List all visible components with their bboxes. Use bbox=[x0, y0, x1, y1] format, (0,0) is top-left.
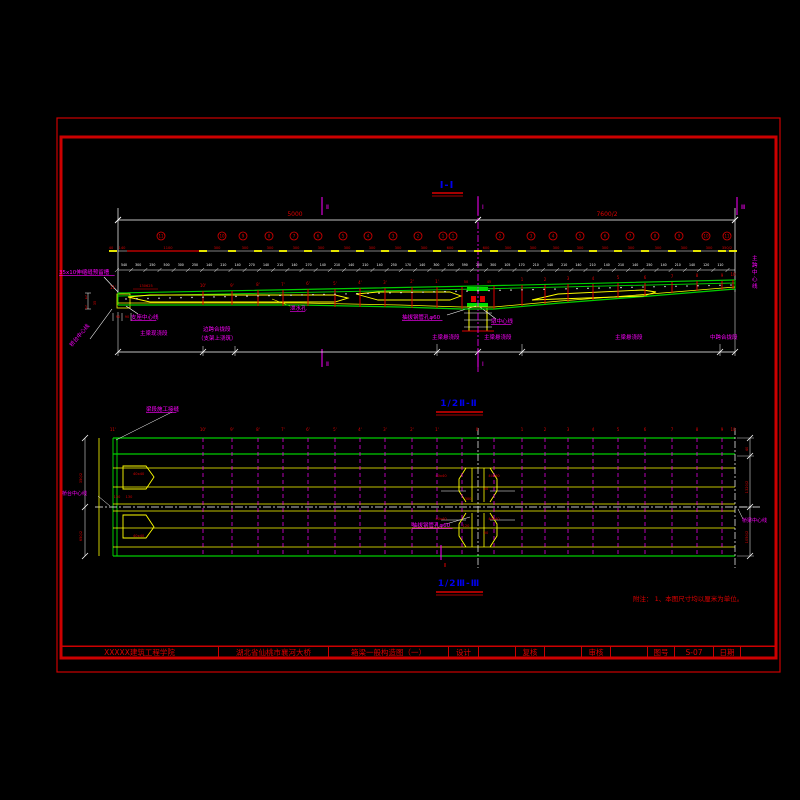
cad-text: Ⅰ bbox=[482, 204, 484, 211]
segment-number-elev: 4 bbox=[592, 276, 595, 281]
tendon-number: 5 bbox=[579, 234, 582, 239]
cad-text: Ⅲ bbox=[741, 204, 745, 211]
cad-text: 650/2 bbox=[79, 531, 83, 541]
small-dim: 210 bbox=[362, 263, 368, 267]
cad-text: 主梁悬浇段 bbox=[432, 333, 460, 341]
small-dim: 120 bbox=[703, 263, 709, 267]
slab-dot bbox=[279, 295, 280, 296]
segment-number-elev: 9 bbox=[721, 273, 724, 278]
cad-text: 140 bbox=[119, 246, 127, 250]
segment-number-elev: 6' bbox=[306, 281, 310, 286]
segment-number-elev: 9' bbox=[230, 283, 234, 288]
slab-dot bbox=[356, 293, 357, 294]
cad-text: 桥台中心线 bbox=[62, 490, 87, 497]
slab-dot bbox=[411, 292, 412, 293]
segment-number-plan: 8 bbox=[696, 427, 699, 432]
cad-text: 300 bbox=[318, 246, 326, 250]
section-title-elevation: Ⅰ-Ⅰ bbox=[425, 180, 469, 191]
cad-text: 300 bbox=[553, 246, 561, 250]
tendon-number: 11 bbox=[158, 234, 164, 239]
cad-text: Ⅱ bbox=[326, 361, 329, 368]
cad-rect bbox=[471, 296, 476, 302]
cad-text: 90 bbox=[125, 315, 129, 319]
cad-text: 支座中心线 bbox=[131, 313, 159, 321]
tendon-number: 1 bbox=[452, 234, 455, 239]
tendon-number: 4 bbox=[367, 234, 370, 239]
cad-text: 1 bbox=[85, 295, 88, 301]
tendon-number: 6 bbox=[317, 234, 320, 239]
small-dim: 270 bbox=[306, 263, 312, 267]
slab-dot bbox=[499, 290, 500, 291]
slab-dot bbox=[125, 298, 126, 299]
cad-text: 300 bbox=[505, 246, 513, 250]
cad-text: 抽拔钢管孔φ60 bbox=[412, 521, 451, 529]
cad-text: 边跨合拢段 bbox=[203, 325, 231, 333]
cad-text: 300 bbox=[530, 246, 538, 250]
segment-number-plan: 1 bbox=[521, 427, 524, 432]
titleblock-drawing-name: 箱梁一般构造图（一） bbox=[329, 647, 449, 659]
tendon-number: 2 bbox=[499, 234, 502, 239]
cad-text: 40x40 bbox=[133, 534, 145, 538]
tendon-number: 10 bbox=[703, 234, 709, 239]
small-dim: 140 bbox=[348, 263, 354, 267]
cad-text: 90 bbox=[116, 315, 120, 319]
small-dim: 250 bbox=[149, 263, 155, 267]
segment-number-elev: 6 bbox=[644, 275, 647, 280]
small-dim: 210 bbox=[277, 263, 283, 267]
segment-number-elev: 7 bbox=[671, 274, 674, 279]
cad-text: 300 bbox=[267, 246, 275, 250]
cad-text: 1050/2 bbox=[745, 531, 749, 544]
small-dim: 170 bbox=[519, 263, 525, 267]
tendon-number: 3 bbox=[530, 234, 533, 239]
segment-number-plan: 1' bbox=[435, 427, 439, 432]
cad-text: 120 bbox=[463, 524, 471, 528]
cad-text: Ⅰ bbox=[482, 361, 484, 368]
small-dim: 140 bbox=[320, 263, 326, 267]
slab-dot bbox=[510, 289, 511, 290]
titleblock-date-value bbox=[741, 647, 776, 659]
small-dim: 140 bbox=[235, 263, 241, 267]
small-dim: 210 bbox=[334, 263, 340, 267]
title-block: XXXXX建筑工程学院 湖北省仙桃市襄河大桥 箱梁一般构造图（一） 设计 复核 … bbox=[61, 646, 776, 658]
cad-text: 300 bbox=[214, 246, 222, 250]
cad-text: （支架上浇筑） bbox=[198, 334, 237, 342]
cad-text: 35 bbox=[93, 301, 97, 305]
segment-number-elev: 8 bbox=[696, 273, 699, 278]
small-dim: 140 bbox=[206, 263, 212, 267]
cad-text: 130625 bbox=[139, 284, 152, 288]
segment-number-plan: 10' bbox=[200, 427, 206, 432]
segment-number-plan: 10 bbox=[730, 427, 736, 432]
cad-text: 40 bbox=[745, 446, 749, 451]
slab-dot bbox=[532, 289, 533, 290]
slab-dot bbox=[389, 292, 390, 293]
small-dim: 500 bbox=[164, 263, 170, 267]
tendon-number: 8 bbox=[268, 234, 271, 239]
cad-rect bbox=[480, 296, 485, 302]
segment-number-plan: 4 bbox=[592, 427, 595, 432]
slab-dot bbox=[400, 292, 401, 293]
cad-text: 300 bbox=[369, 246, 377, 250]
slab-dot bbox=[653, 286, 654, 287]
cad-text: 40x40 bbox=[488, 517, 500, 521]
small-dim: 590 bbox=[462, 263, 468, 267]
segment-number-plan: 6' bbox=[306, 427, 310, 432]
slab-dot bbox=[565, 288, 566, 289]
small-dim: 170 bbox=[405, 263, 411, 267]
cad-text: 130 bbox=[114, 495, 121, 499]
small-dim: 250 bbox=[391, 263, 397, 267]
slab-dot bbox=[290, 294, 291, 295]
titleblock-project: 湖北省仙桃市襄河大桥 bbox=[219, 647, 329, 659]
titleblock-sheetno-value: S-07 bbox=[675, 647, 714, 659]
titleblock-date-label: 日期 bbox=[714, 647, 741, 659]
slab-dot bbox=[697, 285, 698, 286]
small-dim: 140 bbox=[661, 263, 667, 267]
segment-number-plan: 7 bbox=[671, 427, 674, 432]
segment-number-plan: 4' bbox=[358, 427, 362, 432]
slab-dot bbox=[367, 293, 368, 294]
segment-number-elev: 10' bbox=[200, 283, 206, 288]
cad-text: 主梁现浇段 bbox=[140, 329, 168, 337]
slab-dot bbox=[257, 295, 258, 296]
cad-text: 600 bbox=[447, 246, 455, 250]
segment-number-plan: 9 bbox=[721, 427, 724, 432]
small-dim: 300 bbox=[490, 263, 496, 267]
slab-dot bbox=[554, 288, 555, 289]
segment-number-elev: 7' bbox=[281, 282, 285, 287]
cad-text: 桥梁中心线 bbox=[742, 517, 767, 524]
slab-dot bbox=[675, 286, 676, 287]
slab-dot bbox=[158, 298, 159, 299]
segment-number-plan: 5 bbox=[617, 427, 620, 432]
cad-text: 300 bbox=[681, 246, 689, 250]
tendon-number: 6 bbox=[604, 234, 607, 239]
slab-dot bbox=[543, 289, 544, 290]
titleblock-design-value bbox=[479, 647, 516, 659]
segment-number-elev: 3 bbox=[567, 276, 570, 281]
cad-text: 40 bbox=[109, 246, 114, 250]
titleblock-check-label: 复核 bbox=[516, 647, 545, 659]
segment-number-elev: 5 bbox=[617, 275, 620, 280]
units-note: 附注： 1、本图尺寸均以厘米为单位。 bbox=[633, 593, 743, 603]
slab-dot bbox=[620, 287, 621, 288]
slab-dot bbox=[477, 290, 478, 291]
titleblock-check-value bbox=[545, 647, 582, 659]
small-dim: 300 bbox=[433, 263, 439, 267]
slab-dot bbox=[686, 285, 687, 286]
cad-text: 梁段施工接缝 bbox=[146, 405, 180, 413]
slab-dot bbox=[422, 291, 423, 292]
cad-text: 600 bbox=[483, 246, 491, 250]
cad-text: Ⅱ bbox=[444, 563, 446, 569]
slab-dot bbox=[521, 289, 522, 290]
segment-number-plan: 6 bbox=[644, 427, 647, 432]
segment-number-elev: 8' bbox=[256, 282, 260, 287]
slab-dot bbox=[730, 284, 731, 285]
cad-text: Ⅱ bbox=[326, 204, 329, 211]
slab-dot bbox=[466, 290, 467, 291]
slab-dot bbox=[323, 294, 324, 295]
slab-dot bbox=[598, 287, 599, 288]
slab-dot bbox=[301, 294, 302, 295]
cad-sheet: 50007600/2ⅡⅠⅢⅡⅠ4014011003003003003003003… bbox=[0, 0, 800, 800]
cad-text: 7600/2 bbox=[596, 211, 617, 218]
cad-text: 中跨合拢段 bbox=[710, 333, 738, 341]
cad-text: 130 bbox=[126, 495, 133, 499]
small-dim: 210 bbox=[220, 263, 226, 267]
cad-text: 泄水孔 bbox=[290, 304, 307, 312]
cad-rect bbox=[467, 303, 488, 307]
cad-text: 50 bbox=[484, 531, 489, 535]
slab-dot bbox=[433, 291, 434, 292]
small-dim: 210 bbox=[675, 263, 681, 267]
small-dim: 110 bbox=[717, 263, 723, 267]
drawing-svg: 50007600/2ⅡⅠⅢⅡⅠ4014011003003003003003003… bbox=[0, 0, 800, 800]
slab-dot bbox=[587, 288, 588, 289]
small-dim: 250 bbox=[646, 263, 652, 267]
slab-dot bbox=[169, 297, 170, 298]
segment-number-plan: 11' bbox=[110, 427, 116, 432]
cad-text: 300 bbox=[344, 246, 352, 250]
segment-number-elev: 11' bbox=[110, 285, 116, 290]
slab-dot bbox=[378, 292, 379, 293]
small-dim: 210 bbox=[618, 263, 624, 267]
small-dim: 250 bbox=[192, 263, 198, 267]
slab-dot bbox=[455, 291, 456, 292]
cad-text: 300 bbox=[628, 246, 636, 250]
cad-text: 50 bbox=[484, 487, 489, 491]
segment-number-elev: 1' bbox=[435, 279, 439, 284]
cad-text: 350/2 bbox=[722, 246, 732, 250]
titleblock-review-value bbox=[611, 647, 648, 659]
cad-text: 40x40 bbox=[133, 472, 145, 476]
cad-text: 主梁悬浇段 bbox=[484, 333, 512, 341]
cad-text: 300 bbox=[293, 246, 301, 250]
tendon-number: 4 bbox=[552, 234, 555, 239]
cad-text: 1100 bbox=[163, 246, 173, 250]
tendon-number: 9 bbox=[678, 234, 681, 239]
slab-dot bbox=[664, 286, 665, 287]
small-dim: 140 bbox=[689, 263, 695, 267]
cad-text: 45 bbox=[487, 280, 491, 284]
titleblock-review-label: 审核 bbox=[582, 647, 611, 659]
segment-number-plan: 0 bbox=[476, 427, 479, 432]
segment-number-plan: 3' bbox=[383, 427, 387, 432]
small-dim: 200 bbox=[448, 263, 454, 267]
slab-dot bbox=[246, 296, 247, 297]
section-title-plan-top: 1/2Ⅱ-Ⅱ bbox=[430, 399, 488, 409]
cad-text: 1 bbox=[85, 305, 88, 311]
titleblock-sheetno-label: 图号 bbox=[648, 647, 675, 659]
slab-dot bbox=[191, 297, 192, 298]
slab-dot bbox=[345, 293, 346, 294]
cad-text: 5000 bbox=[287, 211, 302, 218]
sheet-background bbox=[0, 0, 800, 800]
segment-number-plan: 7' bbox=[281, 427, 285, 432]
segment-number-elev: 2 bbox=[544, 277, 547, 282]
small-dim: 200 bbox=[476, 263, 482, 267]
slab-dot bbox=[334, 293, 335, 294]
small-dim: 140 bbox=[377, 263, 383, 267]
cad-text: 抽拔钢管孔φ60 bbox=[402, 313, 441, 321]
titleblock-design-label: 设计 bbox=[449, 647, 479, 659]
tendon-number: 8 bbox=[654, 234, 657, 239]
small-dim: 140 bbox=[575, 263, 581, 267]
segment-number-plan: 8' bbox=[256, 427, 260, 432]
small-dim: 105 bbox=[504, 263, 510, 267]
cad-text: 1320/2 bbox=[745, 481, 749, 494]
cad-text: 300 bbox=[577, 246, 585, 250]
slab-dot bbox=[719, 285, 720, 286]
tendon-number: 3 bbox=[392, 234, 395, 239]
cad-text: 墩中心线 bbox=[491, 317, 514, 325]
slab-dot bbox=[631, 287, 632, 288]
segment-number-plan: 2 bbox=[544, 427, 547, 432]
slab-dot bbox=[708, 285, 709, 286]
small-dim: 140 bbox=[419, 263, 425, 267]
cad-text: 300 bbox=[655, 246, 663, 250]
small-dim: 210 bbox=[590, 263, 596, 267]
segment-number-elev: 5' bbox=[333, 281, 337, 286]
slab-dot bbox=[224, 296, 225, 297]
cad-text: 300 bbox=[242, 246, 250, 250]
small-dim: 300 bbox=[135, 263, 141, 267]
cad-text: 40x40 bbox=[488, 474, 500, 478]
small-dim: 140 bbox=[547, 263, 553, 267]
tendon-number: 10 bbox=[219, 234, 225, 239]
slab-dot bbox=[312, 294, 313, 295]
cad-text: 300 bbox=[706, 246, 714, 250]
tendon-number: 9 bbox=[242, 234, 245, 239]
segment-number-elev: 1 bbox=[521, 277, 524, 282]
slab-dot bbox=[444, 291, 445, 292]
slab-dot bbox=[609, 287, 610, 288]
segment-number-plan: 5' bbox=[333, 427, 337, 432]
cad-text: 350/2 bbox=[79, 473, 83, 483]
small-dim: 540 bbox=[121, 263, 127, 267]
small-dim: 300 bbox=[178, 263, 184, 267]
cad-text: 300 bbox=[395, 246, 403, 250]
small-dim: 140 bbox=[263, 263, 269, 267]
cad-text: 主跨中心线 bbox=[752, 254, 758, 290]
tendon-number: 7 bbox=[293, 234, 296, 239]
tendon-number: 1 bbox=[442, 234, 445, 239]
slab-dot bbox=[235, 296, 236, 297]
slab-dot bbox=[136, 298, 137, 299]
segment-number-elev: 10 bbox=[730, 272, 736, 277]
section-title-plan-bottom: 1/2Ⅲ-Ⅲ bbox=[430, 579, 488, 589]
small-dim: 270 bbox=[249, 263, 255, 267]
segment-number-plan: 9' bbox=[230, 427, 234, 432]
tendon-number: 11 bbox=[724, 234, 730, 239]
slab-dot bbox=[488, 290, 489, 291]
cad-text: 300 bbox=[465, 497, 473, 501]
segment-number-elev: 2' bbox=[410, 279, 414, 284]
slab-dot bbox=[642, 286, 643, 287]
tendon-number: 7 bbox=[629, 234, 632, 239]
small-dim: 210 bbox=[533, 263, 539, 267]
slab-dot bbox=[202, 297, 203, 298]
small-dim: 140 bbox=[604, 263, 610, 267]
segment-number-elev: 4' bbox=[358, 280, 362, 285]
small-dim: 140 bbox=[632, 263, 638, 267]
small-dim: 140 bbox=[291, 263, 297, 267]
cad-text: 主梁悬浇段 bbox=[615, 333, 643, 341]
slab-dot bbox=[268, 295, 269, 296]
tendon-number: 5 bbox=[342, 234, 345, 239]
cad-text: 50 bbox=[464, 280, 468, 284]
slab-dot bbox=[576, 288, 577, 289]
slab-dot bbox=[213, 296, 214, 297]
segment-number-elev: 3' bbox=[383, 280, 387, 285]
cad-text: 300 bbox=[602, 246, 610, 250]
segment-number-plan: 3 bbox=[567, 427, 570, 432]
slab-dot bbox=[147, 298, 148, 299]
slab-dot bbox=[180, 297, 181, 298]
segment-number-plan: 2' bbox=[410, 427, 414, 432]
cad-text: 300 bbox=[421, 246, 429, 250]
small-dim: 210 bbox=[561, 263, 567, 267]
titleblock-institute: XXXXX建筑工程学院 bbox=[61, 647, 219, 659]
cad-text: 35x10伸缩缝预留槽 bbox=[59, 268, 110, 276]
tendon-number: 2 bbox=[417, 234, 420, 239]
